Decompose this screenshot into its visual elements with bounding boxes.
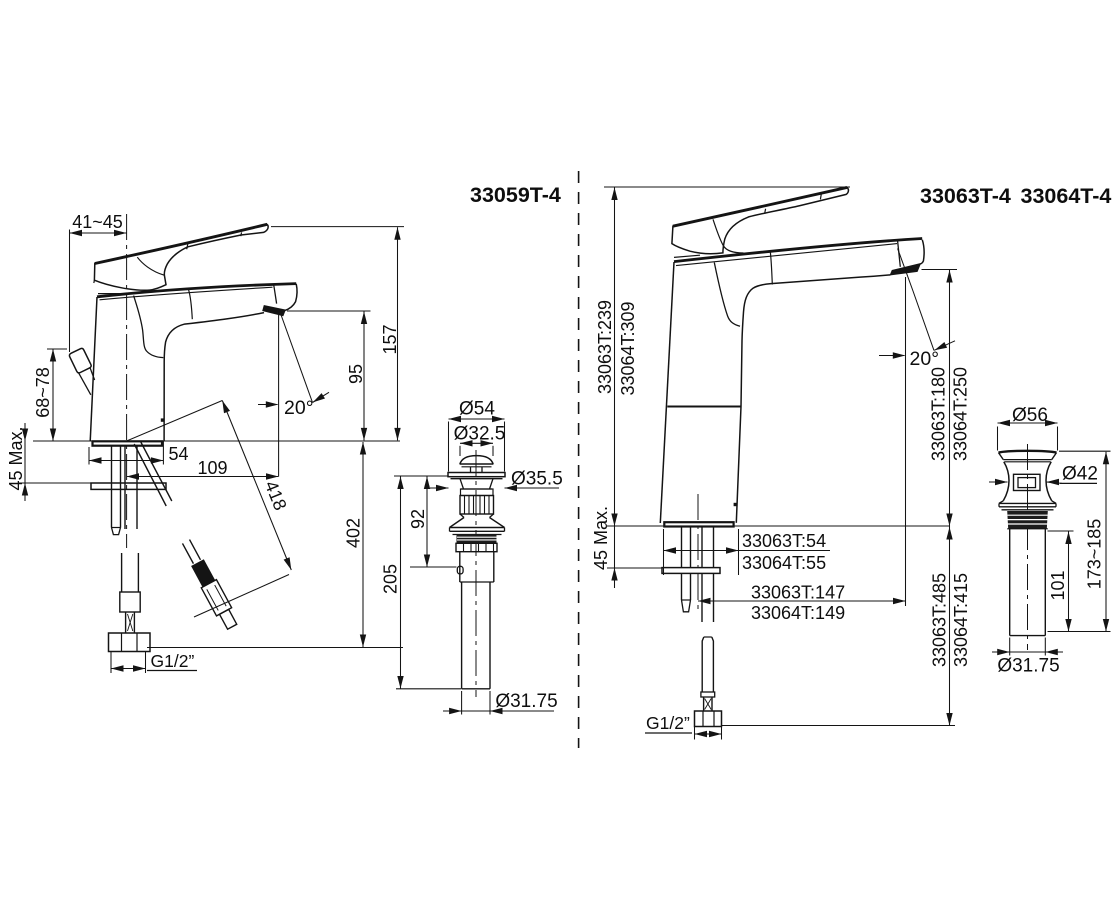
svg-text:95: 95: [346, 364, 366, 384]
svg-text:Ø31.75: Ø31.75: [997, 656, 1059, 677]
svg-text:45 Max.: 45 Max.: [591, 506, 611, 570]
svg-text:Ø32.5: Ø32.5: [454, 424, 506, 445]
svg-text:33063T-4: 33063T-4: [920, 184, 1011, 208]
svg-text:33064T:309: 33064T:309: [618, 301, 638, 395]
svg-text:G1/2”: G1/2”: [151, 651, 195, 671]
svg-text:109: 109: [197, 458, 227, 478]
svg-text:33063T:239: 33063T:239: [595, 300, 615, 394]
svg-text:33063T:54: 33063T:54: [742, 531, 826, 551]
svg-text:33059T-4: 33059T-4: [470, 183, 561, 207]
svg-text:45 Max.: 45 Max.: [6, 426, 26, 490]
svg-text:33064T:415: 33064T:415: [951, 573, 971, 667]
svg-text:173~185: 173~185: [1085, 519, 1105, 590]
svg-text:Ø54: Ø54: [459, 399, 495, 420]
svg-text:33064T:55: 33064T:55: [742, 553, 826, 573]
svg-text:Ø42: Ø42: [1062, 464, 1098, 485]
svg-text:20°: 20°: [910, 348, 940, 370]
svg-text:Ø31.75: Ø31.75: [495, 691, 557, 712]
svg-text:33064T:149: 33064T:149: [751, 603, 845, 623]
svg-text:41~45: 41~45: [72, 212, 123, 232]
svg-text:33064T-4: 33064T-4: [1021, 184, 1112, 208]
svg-text:33063T:180: 33063T:180: [929, 367, 949, 461]
svg-text:33063T:485: 33063T:485: [930, 573, 950, 667]
svg-text:20°: 20°: [284, 397, 314, 419]
svg-text:G1/2”: G1/2”: [646, 713, 690, 733]
svg-text:402: 402: [344, 518, 364, 548]
svg-text:92: 92: [408, 509, 428, 529]
svg-text:33064T:250: 33064T:250: [951, 367, 971, 461]
svg-text:157: 157: [380, 324, 400, 354]
svg-text:101: 101: [1048, 570, 1068, 600]
svg-text:Ø56: Ø56: [1012, 405, 1048, 426]
svg-text:Ø35.5: Ø35.5: [511, 469, 563, 490]
svg-text:54: 54: [168, 444, 188, 464]
svg-text:33063T:147: 33063T:147: [751, 583, 845, 603]
svg-text:68~78: 68~78: [33, 367, 53, 418]
svg-text:205: 205: [381, 564, 401, 594]
